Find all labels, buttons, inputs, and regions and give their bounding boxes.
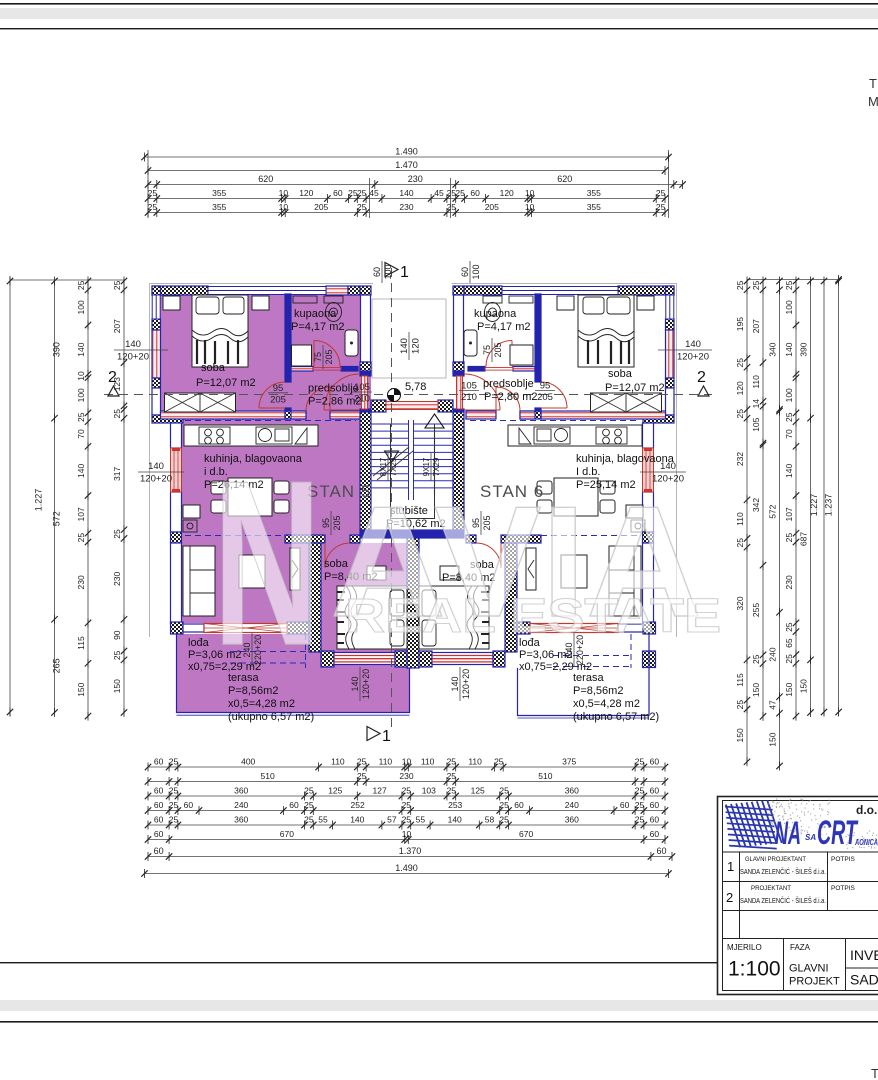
svg-text:25: 25	[635, 757, 645, 767]
svg-text:100: 100	[471, 264, 481, 279]
svg-text:620: 620	[557, 174, 572, 184]
svg-text:2: 2	[726, 890, 733, 905]
svg-text:25: 25	[169, 757, 179, 767]
svg-text:NA: NA	[775, 815, 801, 851]
svg-text:120: 120	[500, 188, 514, 198]
svg-text:soba: soba	[608, 368, 633, 380]
svg-text:kupaona: kupaona	[294, 308, 337, 320]
svg-text:25: 25	[735, 538, 745, 548]
svg-text:105: 105	[461, 381, 477, 392]
svg-text:45: 45	[369, 188, 379, 198]
svg-text:(ukupno 6,57 m2): (ukupno 6,57 m2)	[573, 711, 659, 723]
svg-text:PROJEKTANT: PROJEKTANT	[751, 885, 791, 892]
svg-text:5,78: 5,78	[405, 381, 426, 393]
svg-text:25: 25	[112, 529, 122, 539]
svg-text:120+20: 120+20	[461, 669, 471, 699]
svg-text:25: 25	[148, 202, 158, 212]
svg-text:25: 25	[751, 654, 761, 664]
svg-text:T: T	[871, 1066, 878, 1080]
svg-text:230: 230	[112, 572, 122, 586]
svg-text:25: 25	[112, 409, 122, 419]
svg-text:240: 240	[565, 800, 579, 810]
svg-text:GLAVNI: GLAVNI	[789, 963, 829, 975]
svg-text:25: 25	[357, 188, 367, 198]
svg-text:60: 60	[372, 267, 382, 277]
svg-text:58: 58	[485, 815, 495, 825]
svg-text:65: 65	[784, 638, 794, 648]
svg-text:55: 55	[416, 815, 426, 825]
svg-text:soba: soba	[201, 362, 226, 374]
svg-text:110: 110	[735, 512, 745, 526]
svg-text:1:100: 1:100	[728, 958, 781, 981]
svg-text:25: 25	[76, 412, 86, 422]
svg-text:25: 25	[447, 202, 457, 212]
svg-text:1.227: 1.227	[809, 494, 819, 517]
svg-text:SADR: SADR	[850, 972, 878, 988]
svg-text:25: 25	[784, 622, 794, 632]
svg-text:25: 25	[656, 188, 666, 198]
svg-text:105: 105	[751, 417, 761, 431]
svg-text:x0,5=4,28 m2: x0,5=4,28 m2	[573, 698, 640, 710]
svg-text:150: 150	[76, 682, 86, 696]
svg-text:25: 25	[169, 815, 179, 825]
svg-text:205: 205	[537, 392, 553, 403]
svg-text:57: 57	[387, 815, 397, 825]
svg-text:25: 25	[76, 280, 86, 290]
svg-text:1: 1	[400, 264, 409, 281]
svg-text:T: T	[869, 76, 877, 91]
svg-text:10: 10	[76, 371, 86, 381]
svg-text:POTPIS: POTPIS	[831, 885, 856, 892]
svg-text:60: 60	[154, 786, 164, 796]
svg-text:230: 230	[76, 575, 86, 589]
svg-text:M: M	[868, 94, 878, 109]
svg-text:25: 25	[455, 188, 465, 198]
svg-text:115: 115	[76, 636, 86, 650]
svg-text:SANDA ZELENČIĆ - ŠILEŠ d.i.a.: SANDA ZELENČIĆ - ŠILEŠ d.i.a.	[740, 867, 826, 876]
svg-text:75: 75	[482, 345, 492, 355]
svg-text:25: 25	[499, 800, 509, 810]
svg-text:60: 60	[470, 188, 480, 198]
svg-text:AONICA: AONICA	[854, 838, 878, 847]
svg-text:572: 572	[768, 504, 778, 518]
svg-text:95: 95	[273, 383, 284, 394]
svg-text:360: 360	[565, 786, 579, 796]
svg-text:25: 25	[735, 700, 745, 710]
svg-text:25: 25	[656, 202, 666, 212]
svg-text:140: 140	[784, 342, 794, 356]
svg-text:670: 670	[280, 829, 294, 839]
svg-text:150: 150	[751, 683, 761, 697]
svg-text:P=2,86 m2: P=2,86 m2	[308, 396, 362, 408]
svg-text:2: 2	[697, 369, 706, 386]
svg-text:47: 47	[768, 700, 778, 710]
svg-text:25: 25	[784, 412, 794, 422]
svg-text:d.o.o: d.o.o	[856, 803, 878, 817]
svg-text:kupaona: kupaona	[474, 308, 517, 320]
svg-text:510: 510	[261, 771, 275, 781]
svg-text:255: 255	[751, 603, 761, 617]
svg-text:150: 150	[799, 679, 809, 693]
svg-text:25: 25	[447, 771, 457, 781]
svg-text:1.370: 1.370	[399, 846, 422, 856]
svg-text:100: 100	[76, 388, 86, 402]
svg-text:342: 342	[751, 498, 761, 512]
svg-text:120: 120	[735, 381, 745, 395]
svg-text:60: 60	[154, 800, 164, 810]
svg-text:60: 60	[184, 800, 194, 810]
svg-text:1.490: 1.490	[395, 863, 418, 873]
svg-text:230: 230	[408, 174, 423, 184]
svg-text:195: 195	[735, 317, 745, 331]
svg-text:252: 252	[351, 800, 365, 810]
svg-text:25: 25	[148, 188, 158, 198]
svg-text:P=8,56m2: P=8,56m2	[573, 685, 623, 697]
svg-text:70: 70	[76, 429, 86, 439]
svg-text:140: 140	[76, 464, 86, 478]
svg-text:10: 10	[402, 829, 412, 839]
svg-text:355: 355	[212, 188, 226, 198]
svg-text:240: 240	[234, 800, 248, 810]
svg-text:572: 572	[51, 511, 61, 526]
svg-text:95: 95	[540, 381, 551, 392]
svg-text:140: 140	[125, 339, 141, 350]
svg-text:60: 60	[154, 815, 164, 825]
svg-text:SANDA ZELENČIĆ - ŠILEŠ d.i.a.: SANDA ZELENČIĆ - ŠILEŠ d.i.a.	[740, 896, 826, 905]
svg-text:140: 140	[399, 338, 410, 354]
svg-text:SA: SA	[805, 833, 816, 842]
svg-text:14: 14	[751, 399, 761, 409]
svg-text:265: 265	[51, 658, 61, 673]
svg-text:25: 25	[735, 280, 745, 290]
svg-text:60: 60	[154, 757, 164, 767]
svg-text:140: 140	[350, 676, 360, 691]
svg-text:INVE: INVE	[850, 947, 878, 963]
svg-text:140: 140	[399, 188, 413, 198]
svg-text:340: 340	[768, 342, 778, 356]
svg-text:140: 140	[350, 815, 364, 825]
svg-text:25: 25	[784, 533, 794, 543]
svg-text:lođa: lođa	[188, 637, 210, 649]
svg-text:70: 70	[784, 429, 794, 439]
svg-text:25: 25	[751, 280, 761, 290]
svg-text:25: 25	[304, 786, 314, 796]
svg-text:60: 60	[333, 188, 343, 198]
svg-text:107: 107	[784, 507, 794, 521]
svg-text:60: 60	[154, 829, 164, 839]
svg-text:25: 25	[357, 771, 367, 781]
svg-text:10: 10	[525, 202, 535, 212]
svg-text:CRT: CRT	[817, 814, 859, 852]
svg-text:60: 60	[154, 846, 164, 856]
svg-text:(ukupno 6,57 m2): (ukupno 6,57 m2)	[228, 711, 314, 723]
svg-text:P=3,06 m2: P=3,06 m2	[519, 649, 573, 661]
svg-text:100: 100	[383, 264, 393, 279]
svg-text:390: 390	[51, 342, 61, 357]
svg-text:60: 60	[460, 267, 470, 277]
svg-text:25: 25	[304, 815, 314, 825]
svg-text:2: 2	[108, 369, 117, 386]
svg-text:120: 120	[299, 188, 313, 198]
svg-text:25: 25	[499, 786, 509, 796]
svg-text:253: 253	[448, 800, 462, 810]
svg-text:110: 110	[468, 757, 482, 767]
svg-text:120+20: 120+20	[140, 474, 172, 485]
svg-text:127: 127	[373, 786, 387, 796]
svg-text:75: 75	[313, 352, 323, 362]
svg-text:125: 125	[471, 786, 485, 796]
svg-text:120+20: 120+20	[677, 352, 709, 363]
svg-text:687: 687	[799, 532, 809, 546]
svg-text:100: 100	[784, 300, 794, 314]
svg-text:1: 1	[727, 859, 734, 874]
svg-text:REAL ESTATE: REAL ESTATE	[345, 590, 721, 643]
svg-text:100: 100	[76, 300, 86, 314]
svg-text:25: 25	[784, 280, 794, 290]
svg-text:60: 60	[514, 800, 524, 810]
svg-text:25: 25	[635, 815, 645, 825]
svg-text:25: 25	[169, 800, 179, 810]
svg-text:MJERILO: MJERILO	[727, 943, 762, 952]
svg-text:210: 210	[461, 392, 477, 403]
svg-text:240: 240	[768, 647, 778, 661]
svg-text:60: 60	[650, 815, 660, 825]
svg-text:1.490: 1.490	[395, 147, 418, 157]
svg-text:25: 25	[635, 786, 645, 796]
svg-text:90: 90	[112, 630, 122, 640]
svg-text:140: 140	[450, 676, 460, 691]
svg-text:140: 140	[76, 342, 86, 356]
svg-text:1: 1	[382, 728, 391, 745]
svg-text:140: 140	[148, 461, 164, 472]
svg-text:360: 360	[565, 815, 579, 825]
svg-text:205: 205	[485, 202, 499, 212]
svg-text:25: 25	[76, 533, 86, 543]
svg-text:150: 150	[735, 728, 745, 742]
svg-text:10: 10	[279, 202, 289, 212]
svg-text:103: 103	[422, 786, 436, 796]
svg-text:25: 25	[402, 815, 412, 825]
svg-text:25: 25	[447, 757, 457, 767]
svg-text:25: 25	[112, 280, 122, 290]
svg-text:25: 25	[735, 358, 745, 368]
svg-text:25: 25	[447, 786, 457, 796]
svg-text:25: 25	[494, 757, 504, 767]
svg-text:205: 205	[324, 349, 334, 364]
svg-text:110: 110	[421, 757, 435, 767]
svg-text:207: 207	[751, 319, 761, 333]
svg-text:670: 670	[519, 829, 533, 839]
svg-text:P=4,17 m2: P=4,17 m2	[477, 321, 531, 333]
svg-text:620: 620	[258, 174, 273, 184]
svg-text:10: 10	[402, 757, 412, 767]
svg-text:1.470: 1.470	[395, 160, 418, 170]
svg-text:25: 25	[357, 757, 367, 767]
svg-text:355: 355	[587, 188, 601, 198]
svg-text:25: 25	[402, 786, 412, 796]
svg-text:120: 120	[411, 338, 422, 354]
svg-text:60: 60	[289, 800, 299, 810]
svg-text:205: 205	[314, 202, 328, 212]
svg-text:390: 390	[799, 342, 809, 356]
svg-text:230: 230	[784, 575, 794, 589]
svg-text:25: 25	[112, 650, 122, 660]
svg-text:P=12,07 m2: P=12,07 m2	[196, 377, 256, 389]
svg-text:320: 320	[735, 596, 745, 610]
svg-text:P=4,17 m2: P=4,17 m2	[291, 321, 345, 333]
svg-text:kuhinja, blagovaona: kuhinja, blagovaona	[576, 453, 675, 465]
svg-text:140: 140	[685, 339, 701, 350]
svg-text:1.237: 1.237	[823, 494, 833, 517]
svg-text:110: 110	[379, 757, 393, 767]
svg-text:355: 355	[587, 202, 601, 212]
svg-text:150: 150	[112, 679, 122, 693]
svg-text:25: 25	[635, 800, 645, 810]
svg-text:115: 115	[735, 673, 745, 687]
svg-text:107: 107	[76, 507, 86, 521]
svg-text:25: 25	[784, 654, 794, 664]
svg-text:120+20: 120+20	[361, 669, 371, 699]
svg-text:FAZA: FAZA	[790, 943, 811, 952]
svg-text:P=2,80 m2: P=2,80 m2	[484, 391, 538, 403]
svg-text:205: 205	[493, 342, 503, 357]
svg-text:205: 205	[270, 394, 286, 405]
svg-text:360: 360	[234, 786, 248, 796]
svg-text:45: 45	[434, 188, 444, 198]
svg-text:10: 10	[279, 188, 289, 198]
svg-text:55: 55	[318, 815, 328, 825]
svg-text:317: 317	[112, 467, 122, 481]
svg-text:25: 25	[304, 800, 314, 810]
svg-text:predsoblje: predsoblje	[483, 378, 534, 390]
svg-text:230: 230	[399, 771, 413, 781]
svg-text:207: 207	[112, 319, 122, 333]
svg-text:150: 150	[768, 732, 778, 746]
svg-text:10: 10	[525, 188, 535, 198]
svg-text:232: 232	[735, 452, 745, 466]
svg-text:140: 140	[448, 815, 462, 825]
svg-text:terasa: terasa	[573, 672, 604, 684]
svg-text:510: 510	[538, 771, 552, 781]
svg-text:GLAVNI PROJEKTANT: GLAVNI PROJEKTANT	[745, 856, 806, 863]
svg-text:POTPIS: POTPIS	[831, 856, 856, 863]
svg-text:125: 125	[328, 786, 342, 796]
svg-text:230: 230	[399, 202, 413, 212]
svg-text:60: 60	[656, 846, 666, 856]
svg-text:60: 60	[650, 786, 660, 796]
svg-text:100: 100	[784, 388, 794, 402]
svg-text:25: 25	[735, 409, 745, 419]
svg-text:25: 25	[402, 800, 412, 810]
svg-text:60: 60	[650, 757, 660, 767]
svg-text:25: 25	[357, 202, 367, 212]
svg-text:110: 110	[331, 757, 345, 767]
svg-text:60: 60	[620, 800, 630, 810]
svg-text:predsoblje: predsoblje	[308, 383, 359, 395]
svg-text:PROJEKT: PROJEKT	[789, 976, 840, 988]
svg-text:150: 150	[784, 682, 794, 696]
svg-text:1.227: 1.227	[34, 489, 44, 512]
svg-text:P=12,07 m2: P=12,07 m2	[605, 382, 665, 394]
svg-text:140: 140	[784, 464, 794, 478]
svg-text:60: 60	[650, 829, 660, 839]
svg-text:25: 25	[499, 815, 509, 825]
svg-text:360: 360	[234, 815, 248, 825]
svg-text:60: 60	[650, 800, 660, 810]
svg-text:120+20: 120+20	[117, 352, 149, 363]
svg-text:25: 25	[169, 786, 179, 796]
svg-text:400: 400	[241, 757, 255, 767]
svg-text:x0,5=4,28 m2: x0,5=4,28 m2	[228, 698, 295, 710]
svg-text:355: 355	[212, 202, 226, 212]
svg-text:N: N	[213, 431, 321, 694]
svg-text:375: 375	[562, 757, 576, 767]
svg-text:110: 110	[751, 375, 761, 389]
